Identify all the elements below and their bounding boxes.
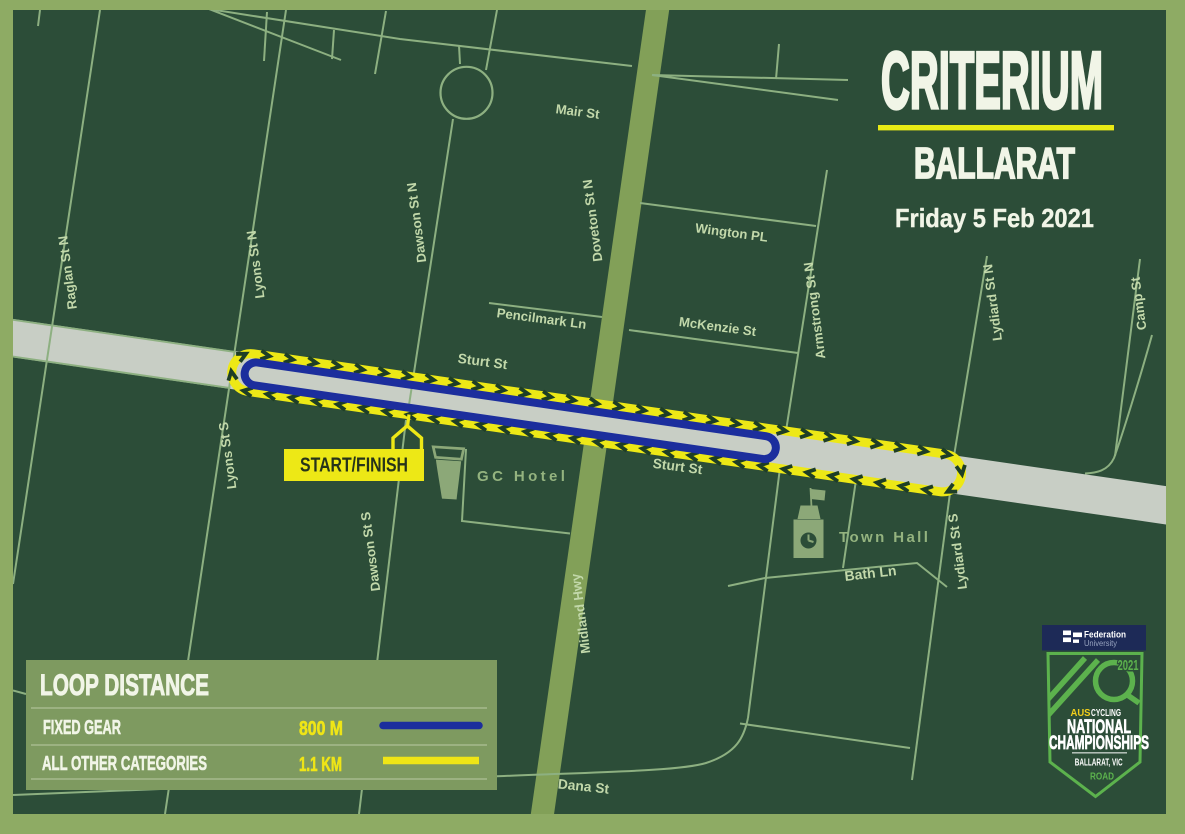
svg-text:CRITERIUM: CRITERIUM bbox=[881, 36, 1103, 126]
svg-text:University: University bbox=[1084, 639, 1117, 648]
svg-text:ALL OTHER CATEGORIES: ALL OTHER CATEGORIES bbox=[42, 753, 207, 775]
svg-text:FIXED GEAR: FIXED GEAR bbox=[43, 717, 121, 739]
svg-text:Friday 5 Feb 2021: Friday 5 Feb 2021 bbox=[895, 203, 1094, 233]
svg-text:800 M: 800 M bbox=[299, 718, 343, 740]
svg-text:ROAD: ROAD bbox=[1090, 771, 1114, 783]
svg-text:1.1 KM: 1.1 KM bbox=[299, 754, 342, 776]
svg-text:BALLARAT, VIC: BALLARAT, VIC bbox=[1075, 758, 1123, 769]
svg-text:2021: 2021 bbox=[1118, 658, 1139, 674]
svg-text:START/FINISH: START/FINISH bbox=[300, 454, 408, 477]
svg-text:LOOP DISTANCE: LOOP DISTANCE bbox=[40, 669, 209, 702]
svg-text:CHAMPIONSHIPS: CHAMPIONSHIPS bbox=[1049, 733, 1149, 754]
svg-text:GC Hotel: GC Hotel bbox=[477, 468, 568, 485]
svg-text:Federation: Federation bbox=[1084, 630, 1126, 640]
svg-text:BALLARAT: BALLARAT bbox=[914, 139, 1075, 188]
svg-text:Town Hall: Town Hall bbox=[839, 529, 930, 546]
